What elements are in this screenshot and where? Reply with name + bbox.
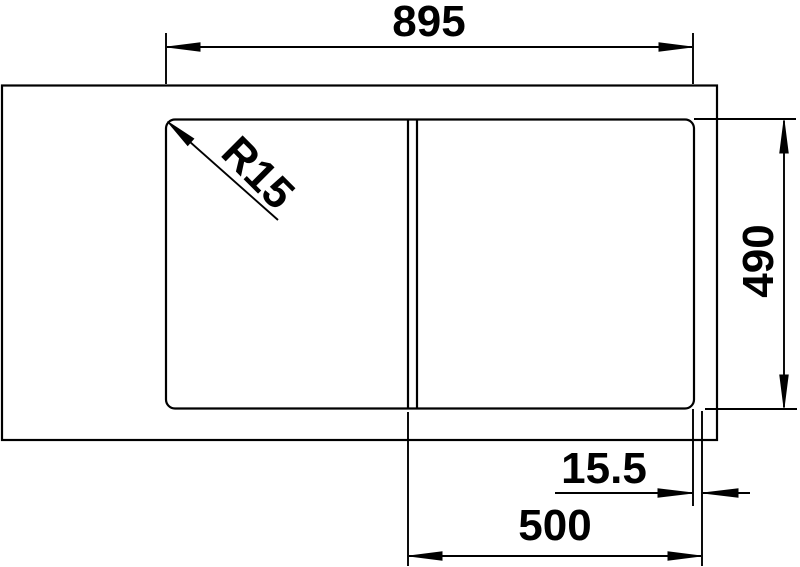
dimension-depth: 490 [694, 119, 797, 409]
dimension-overall-width: 895 [166, 0, 693, 84]
dimension-bowl-width: 500 [408, 412, 701, 566]
offset-label: 15.5 [561, 444, 647, 493]
arrowhead-right-icon [668, 552, 701, 560]
arrowhead-left-icon [703, 489, 738, 497]
sink-dimension-drawing: 895 490 15.5 500 [0, 0, 800, 567]
arrowhead-diagonal-icon [168, 122, 194, 146]
arrowhead-right-icon [659, 43, 692, 51]
depth-label: 490 [734, 224, 783, 297]
drawing-canvas: 895 490 15.5 500 [0, 0, 800, 567]
corner-radius-label: R15 [212, 127, 304, 219]
arrowhead-right-icon [658, 489, 693, 497]
arrowhead-up-icon [780, 120, 788, 153]
annotation-corner-radius: R15 [168, 122, 304, 221]
sink-outer-rim-outline [2, 86, 717, 441]
arrowhead-down-icon [780, 375, 788, 408]
arrowhead-left-icon [167, 43, 200, 51]
bowl-width-label: 500 [518, 501, 591, 550]
overall-width-label: 895 [392, 0, 465, 46]
arrowhead-left-icon [409, 552, 442, 560]
